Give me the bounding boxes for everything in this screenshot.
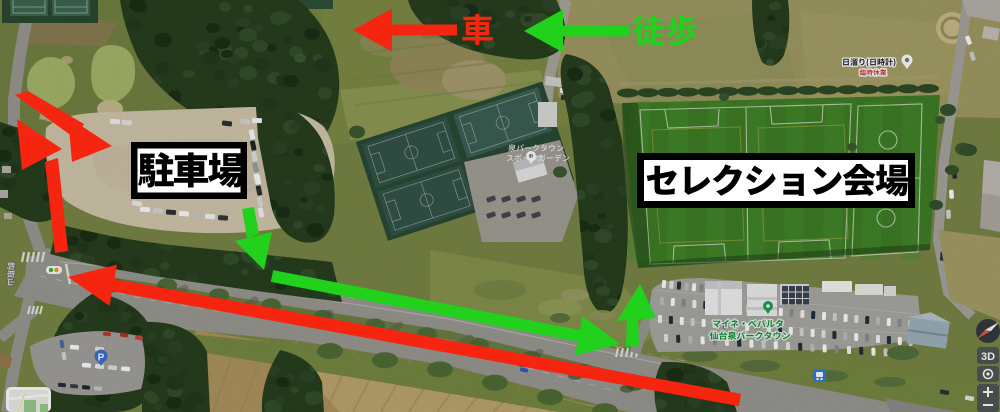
svg-text:P: P — [98, 353, 105, 364]
svg-text:3D: 3D — [981, 351, 995, 363]
